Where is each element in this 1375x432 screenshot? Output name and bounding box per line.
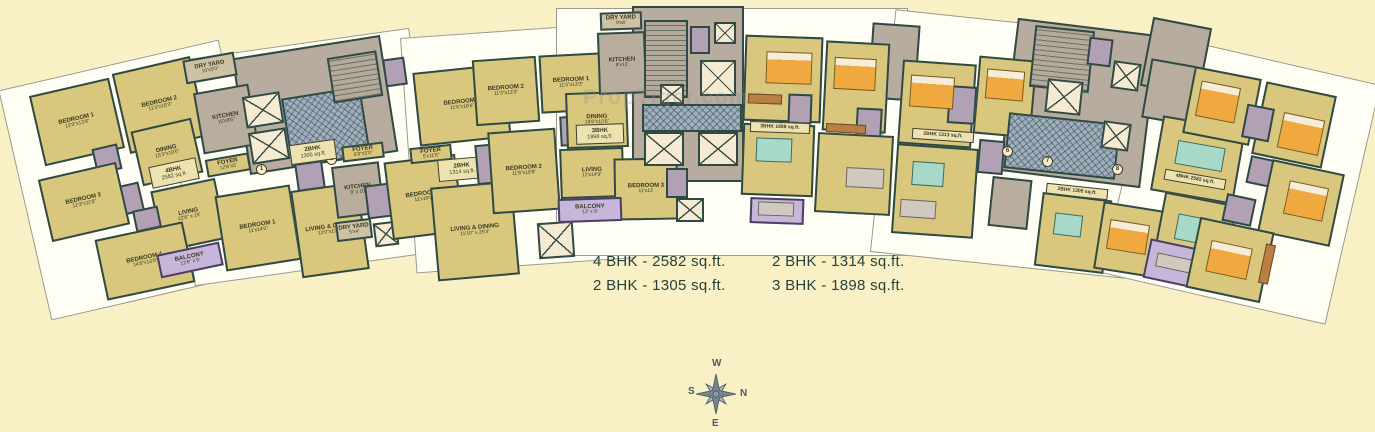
room-dimensions: 11'3"x13'3" xyxy=(494,91,519,98)
lift-shaft xyxy=(537,221,575,259)
lift-shaft xyxy=(1100,120,1132,152)
room-dimensions: 9'x6' xyxy=(616,21,626,27)
toilet xyxy=(382,57,408,88)
room-label: 2BHK 1313 sq.ft. xyxy=(923,132,963,140)
circle-1: 1 xyxy=(256,164,267,175)
room-label: 3BHK 1898 sq.ft. xyxy=(760,124,800,131)
room-dimensions: 11'6"x16'6" xyxy=(450,104,475,112)
area-label-3bhk: 3BHK 1898 sq.ft. xyxy=(750,121,810,134)
dining-table xyxy=(1053,212,1083,237)
legend-item-4bhk: 4 BHK - 2582 sq.ft. xyxy=(593,253,725,270)
compass-north-label: N xyxy=(740,388,747,399)
bedroom-2: BEDROOM 211'3"x13'3" xyxy=(472,56,540,126)
floorplan-canvas: BEDROOM 112'0"x13'9"BEDROOM 211'3"x15'3"… xyxy=(0,0,1375,432)
room-dimensions: 12'x14'9" xyxy=(582,173,602,179)
room-dimensions: 6'9"x5'0" xyxy=(354,151,374,159)
room-dimensions: 10'x8'6" xyxy=(218,118,236,126)
toilet xyxy=(1221,193,1256,227)
sofa xyxy=(846,167,885,189)
circle-6: 6 xyxy=(1002,146,1013,157)
watermark: PropTiger.com xyxy=(583,86,749,110)
dining-table xyxy=(756,137,793,162)
room-dimensions: 11'3"x13'3" xyxy=(559,83,584,90)
lift-shaft xyxy=(714,22,736,44)
toilet xyxy=(666,168,688,198)
room-label: 6 xyxy=(1006,148,1009,154)
bed xyxy=(765,51,812,85)
legend-item-3bhk: 3 BHK - 1898 sq.ft. xyxy=(772,277,904,294)
room-dimensions: 12'6"x5' xyxy=(220,164,238,172)
stairs xyxy=(327,50,384,103)
lift-shaft xyxy=(644,132,684,166)
lift-shaft xyxy=(242,91,285,129)
toilet xyxy=(787,94,812,125)
circle-7: 7 xyxy=(1042,156,1053,167)
kitchen xyxy=(987,176,1032,230)
sofa xyxy=(758,201,794,216)
bed xyxy=(833,57,877,91)
bed xyxy=(909,75,955,110)
room-dimensions: 11'x14'0" xyxy=(248,227,268,236)
room-label: 7 xyxy=(1046,158,1049,164)
bedroom-2: BEDROOM 211'6"x19'8" xyxy=(487,128,561,215)
wardrobe xyxy=(748,93,782,104)
lift-shaft xyxy=(676,198,704,222)
area-label-3bhk: 3BHK1898 sq.ft. xyxy=(576,123,625,145)
room-dimensions: 10'x5'0" xyxy=(202,67,220,75)
legend-item-2bhk-1314: 2 BHK - 1314 sq.ft. xyxy=(772,253,904,270)
lift-shaft xyxy=(698,132,738,166)
compass-star-icon xyxy=(696,374,736,414)
room-dimensions: 12'6" x 5' xyxy=(180,258,201,268)
lift-shaft xyxy=(1110,60,1142,92)
bed xyxy=(985,68,1025,101)
room-dimensions: 9'x13' xyxy=(616,63,629,69)
bedroom-1: BEDROOM 111'x14'0" xyxy=(215,185,302,272)
circle-8: 8 xyxy=(1112,164,1123,175)
room-dimensions: 11'10" x 25'4" xyxy=(460,230,490,238)
bed xyxy=(1195,81,1241,124)
compass-south-label: S xyxy=(688,386,695,397)
room-dimensions: 11'6"x19'8" xyxy=(512,171,537,178)
dry-yard: DRY YARD9'x6' xyxy=(600,11,643,30)
room-dimensions: 5'x4' xyxy=(349,230,360,237)
sofa xyxy=(899,199,936,219)
balcony: BALCONY12' x 5' xyxy=(558,197,623,223)
lift-shaft xyxy=(248,127,291,165)
bed xyxy=(1106,219,1150,255)
room-dimensions: 11'x13' xyxy=(638,189,653,195)
room-dimensions: 12' x 5' xyxy=(582,210,598,216)
legend-item-2bhk-1305: 2 BHK - 1305 sq.ft. xyxy=(593,277,725,294)
room-dimensions: 1314 sq.ft. xyxy=(449,168,475,176)
room-dimensions: 1898 sq.ft. xyxy=(587,134,613,141)
room-label: 1 xyxy=(260,166,263,172)
compass-east-label: E xyxy=(712,418,719,429)
dining-table xyxy=(911,161,945,187)
living-dining xyxy=(891,143,979,239)
compass-west-label: W xyxy=(712,358,721,369)
compass-rose: W S N E xyxy=(676,356,756,432)
lift xyxy=(1044,78,1083,116)
toilet xyxy=(977,139,1006,175)
room-label: 8 xyxy=(1116,166,1119,172)
toilet xyxy=(690,26,710,54)
toilet xyxy=(1086,37,1113,68)
